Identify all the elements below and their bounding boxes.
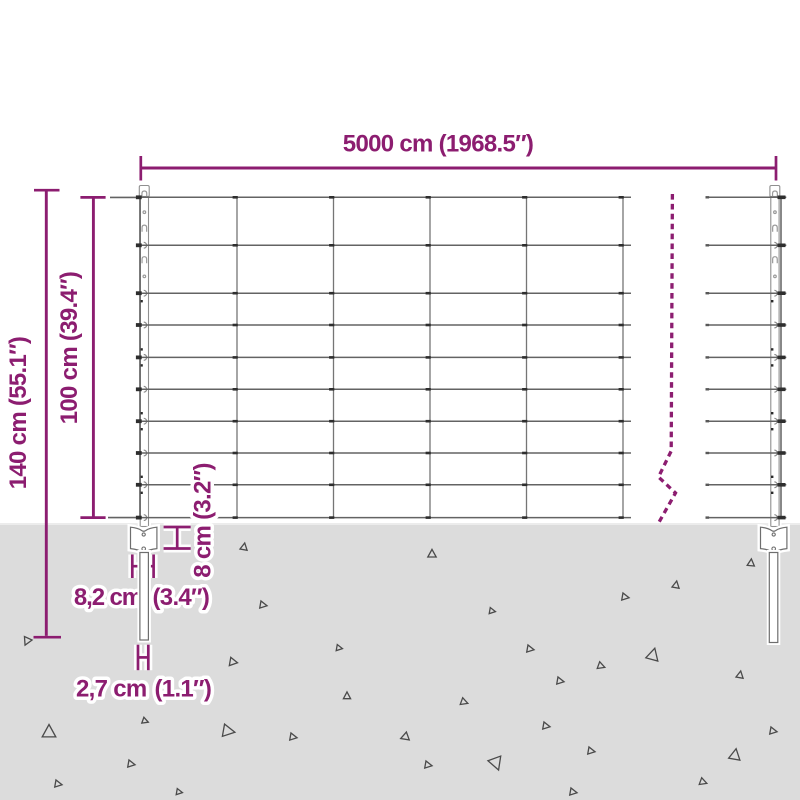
svg-text:8 cm (3.2″): 8 cm (3.2″) [190,463,217,578]
svg-text:(3.4″): (3.4″) [153,584,210,611]
svg-text:100 cm (39.4″): 100 cm (39.4″) [56,272,83,424]
svg-text:2,7 cm: 2,7 cm [76,676,147,703]
svg-text:140 cm (55.1″): 140 cm (55.1″) [5,337,32,489]
svg-text:(1.1″): (1.1″) [155,676,212,703]
svg-text:8,2 cm: 8,2 cm [74,584,142,611]
svg-text:5000 cm (1968.5″): 5000 cm (1968.5″) [343,131,533,158]
